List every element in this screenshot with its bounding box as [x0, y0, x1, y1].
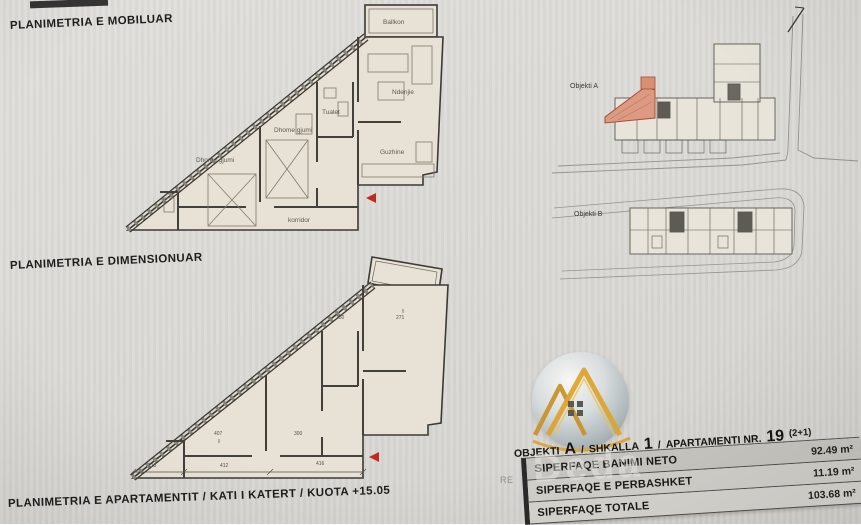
room-label-living: Ndenjie	[392, 89, 414, 96]
dim-407: 407	[214, 431, 223, 437]
room-label-bedroom1: Dhome gjumi	[196, 157, 234, 164]
unit-type-badge: (2+1)	[789, 427, 812, 439]
shkalla-label: SHKALLA	[589, 440, 640, 455]
scan-edge-strip	[30, 0, 108, 8]
site-a-roads	[552, 14, 858, 173]
apartamenti-value: 19	[766, 427, 785, 446]
room-label-toilet: Tualet	[322, 109, 340, 116]
site-label-objekti-b: Objekti B	[574, 211, 603, 218]
separator: /	[581, 444, 585, 456]
row-value: 103.68 m²	[808, 487, 857, 502]
room-label-bedroom2: Dhome gjumi	[274, 127, 312, 134]
dim-416: 416	[316, 461, 325, 467]
dim-150: 150	[336, 315, 345, 321]
shkalla-value: 1	[643, 436, 653, 455]
room-label-corridor: korridor	[288, 217, 311, 224]
objekti-label: OBJEKTI	[514, 445, 560, 460]
apartment2-outline	[133, 285, 448, 478]
plan2-outline	[133, 257, 448, 478]
north-arrow-icon	[780, 2, 820, 37]
dim-412: 412	[220, 463, 229, 469]
row-value: 11.19 m²	[813, 465, 855, 480]
dimensioned-floor-plan: 218 412 416 407 300 271 150	[120, 253, 465, 491]
entry-arrow-marker	[366, 193, 376, 203]
dim-271: 271	[396, 315, 405, 321]
room-label-kitchen: Guzhine	[380, 149, 405, 156]
site-b-building	[630, 208, 792, 254]
site-label-objekti-a: Objekti A	[570, 83, 598, 90]
site-a-highlighted-unit	[605, 77, 655, 123]
objekti-value: A	[564, 440, 577, 459]
scanned-plan-sheet: PLANIMETRIA E MOBILUAR PLANIMETRIA E DIM…	[0, 0, 861, 524]
dim-300: 300	[294, 431, 303, 437]
room-label-balcony: Ballkon	[383, 19, 405, 26]
row-label: SIPERFAQE TOTALE	[537, 500, 650, 519]
furnished-floor-plan: Ballkon Ndenjie Tualet Dhome gjumi Dhome…	[116, 2, 448, 242]
separator: /	[658, 439, 662, 451]
watermark-side-text: RE	[500, 475, 514, 485]
site-plan-objekti-b: Objekti B	[552, 178, 858, 290]
row-value: 92.49 m²	[811, 443, 854, 458]
dim-218: 218	[148, 463, 157, 469]
entry-arrow-marker-2	[369, 452, 379, 462]
